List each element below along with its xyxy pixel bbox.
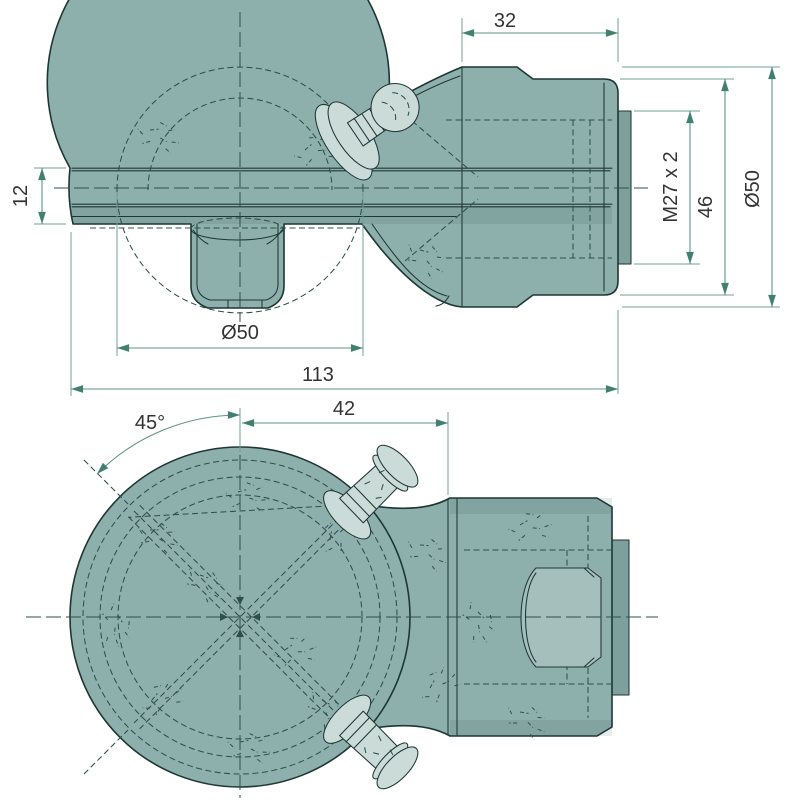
plan-view: 42 45° (26, 398, 658, 798)
dimension-12: 12 (10, 168, 66, 224)
ball-hitch-drawing: 32 12 M27 x 2 46 Ø50 Ø50 (0, 0, 800, 800)
dim-overall-length-label: 113 (302, 364, 334, 386)
dim-thread-label: M27 x 2 (660, 151, 682, 222)
dim-across-flats-label: 46 (695, 196, 717, 218)
dim-ball-diameter-label: Ø50 (221, 322, 259, 344)
side-view: 32 12 M27 x 2 46 Ø50 Ø50 (10, 0, 780, 396)
technical-drawing-page: 32 12 M27 x 2 46 Ø50 Ø50 (0, 0, 800, 800)
dim-shaft-diameter-label: Ø50 (742, 170, 764, 208)
plan-shaft-shading-bottom (450, 720, 612, 736)
dim-shaft-length-label: 32 (494, 10, 516, 32)
pin-band-shading (72, 206, 612, 224)
dim-center-to-shaft-label: 42 (333, 398, 355, 420)
plan-shaft-shading-top (450, 498, 612, 514)
dimension-shaft-dia-50: Ø50 (622, 67, 780, 307)
dim-slot-height-label: 12 (10, 185, 32, 207)
dim-nipple-angle-label: 45° (135, 412, 165, 434)
